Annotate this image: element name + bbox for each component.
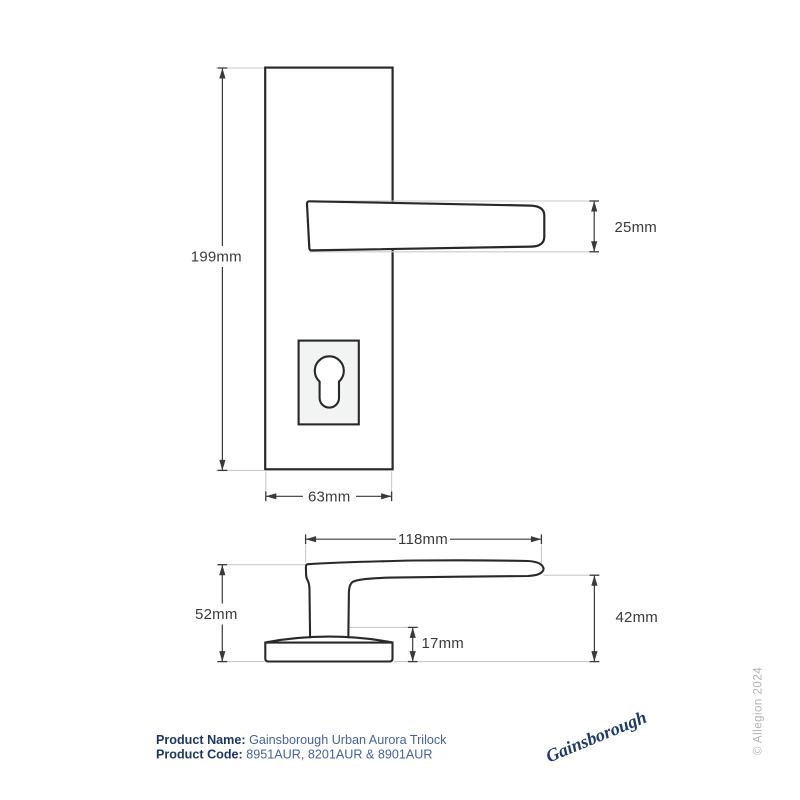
svg-text:25mm: 25mm: [615, 219, 657, 236]
svg-text:199mm: 199mm: [191, 249, 242, 266]
svg-text:52mm: 52mm: [195, 606, 237, 623]
svg-text:© Allegion 2024: © Allegion 2024: [753, 667, 765, 755]
svg-text:17mm: 17mm: [422, 635, 464, 652]
svg-text:Product Code: 8951AUR, 8201AUR: Product Code: 8951AUR, 8201AUR & 8901AUR: [156, 748, 432, 762]
svg-text:118mm: 118mm: [398, 531, 448, 548]
svg-text:63mm: 63mm: [308, 489, 350, 506]
svg-text:42mm: 42mm: [616, 609, 658, 626]
svg-text:Product Name: Gainsborough Urb: Product Name: Gainsborough Urban Aurora …: [156, 733, 447, 747]
